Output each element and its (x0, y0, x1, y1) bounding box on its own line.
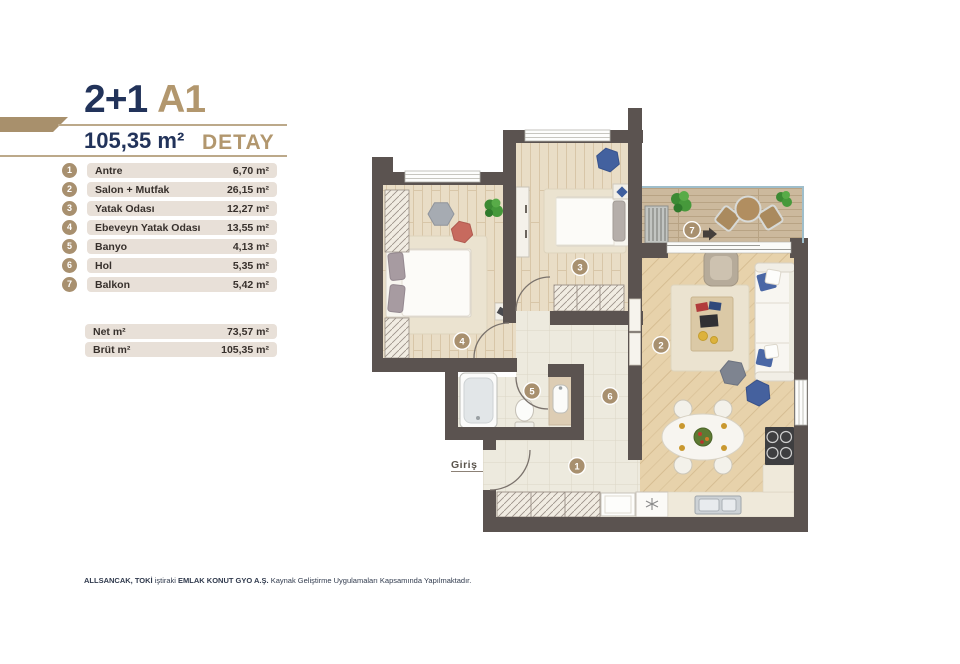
room-number-badge: 3 (62, 201, 77, 216)
fruit (698, 432, 702, 436)
legend-row-salon: 2 Salon + Mutfak26,15 m² (62, 182, 277, 197)
wall (372, 358, 517, 372)
badge-ebeveyn: 4 (454, 333, 471, 350)
room-name: Yatak Odası (95, 203, 155, 215)
room-name: Hol (95, 260, 112, 272)
header-divider-top (58, 124, 287, 126)
room-area: 5,42 m² (233, 279, 269, 291)
gross-area-row: Brüt m² 105,35 m² (85, 342, 277, 357)
duvet (402, 250, 470, 316)
plate (679, 445, 685, 451)
pillow (388, 252, 406, 280)
net-area-row: Net m² 73,57 m² (85, 324, 277, 339)
room-area: 26,15 m² (227, 184, 269, 196)
wall (372, 157, 383, 370)
white-pillow (765, 269, 781, 285)
legend-row-banyo: 5 Banyo4,13 m² (62, 239, 277, 254)
white-pillow (764, 344, 779, 359)
room-area: 4,13 m² (233, 241, 269, 253)
badge-salon: 2 (653, 337, 670, 354)
badge-hol: 6 (602, 388, 619, 405)
balcony-table (736, 197, 761, 222)
door-slab (630, 333, 641, 365)
net-value: 73,57 m² (227, 326, 269, 338)
window (405, 171, 480, 182)
room-number-badge: 6 (62, 258, 77, 273)
plant (671, 191, 692, 213)
disclaimer-bold-1: ALLSANCAK, TOKİ (84, 576, 153, 585)
room-name: Ebeveyn Yatak Odası (95, 222, 200, 234)
armchair-seat (710, 256, 732, 280)
unit-type-label: 2+1 (84, 78, 147, 121)
wardrobe (516, 187, 529, 257)
badge-number: 6 (607, 391, 612, 402)
book (709, 301, 722, 311)
room-number-badge: 2 (62, 182, 77, 197)
net-label: Net m² (93, 326, 126, 338)
floor-plan-svg: 1 2 3 4 5 6 7 Giriş (365, 90, 815, 540)
detail-label: DETAY (202, 131, 275, 155)
plate (721, 423, 727, 429)
door-slab (630, 299, 641, 331)
disclaimer: ALLSANCAK, TOKİ iştiraki EMLAK KONUT GYO… (84, 576, 471, 585)
wall (628, 243, 668, 258)
toilet (516, 399, 534, 421)
badge-number: 3 (577, 262, 582, 273)
badge-antre: 1 (569, 458, 586, 475)
floor-plan: 1 2 3 4 5 6 7 Giriş (365, 90, 815, 540)
room-name: Banyo (95, 241, 127, 253)
badge-banyo: 5 (524, 383, 541, 400)
disclaimer-text-2: Kaynak Geliştirme Uygulamaları Kapsamınd… (269, 576, 472, 585)
gross-label: Brüt m² (93, 344, 130, 356)
fruit (705, 437, 709, 441)
drain (476, 416, 480, 420)
room-number-badge: 7 (62, 277, 77, 292)
room-name: Antre (95, 165, 122, 177)
plate (679, 423, 685, 429)
disclaimer-text-1: iştiraki (153, 576, 178, 585)
wall (503, 130, 516, 323)
pillow (388, 284, 406, 312)
legend-row-hol: 6 Hol5,35 m² (62, 258, 277, 273)
counter (763, 465, 794, 492)
floor-plan-page: { "header": { "unit_type": "2+1", "block… (0, 0, 960, 664)
badge-number: 1 (574, 461, 580, 472)
sink-basin (722, 499, 736, 511)
pillow (613, 201, 625, 241)
sink-basin (699, 499, 719, 511)
wardrobe (385, 190, 409, 252)
gross-value: 105,35 m² (221, 344, 269, 356)
page-title: 2+1A1 (84, 78, 205, 122)
room-area: 6,70 m² (233, 165, 269, 177)
plate (721, 445, 727, 451)
badge-number: 4 (459, 336, 465, 347)
entry-closet (497, 492, 600, 517)
legend-row-yatak: 3 Yatak Odası12,27 m² (62, 201, 277, 216)
fruit (700, 440, 704, 444)
room-name: Balkon (95, 279, 130, 291)
wall (483, 517, 808, 532)
closet (554, 285, 624, 311)
badge-number: 5 (529, 386, 535, 397)
room-name: Salon + Mutfak (95, 184, 169, 196)
wall (550, 311, 643, 325)
room-legend: 1 Antre6,70 m² 2 Salon + Mutfak26,15 m² … (62, 163, 277, 296)
room-number-badge: 5 (62, 239, 77, 254)
badge-balkon: 7 (684, 222, 701, 239)
room-area: 12,27 m² (227, 203, 269, 215)
bowl (699, 332, 708, 341)
room-area: 5,35 m² (233, 260, 269, 272)
faucet (559, 386, 563, 390)
badge-number: 2 (658, 340, 663, 351)
window (795, 380, 807, 425)
gross-area-label: 105,35 m² (84, 128, 184, 154)
wall (483, 440, 496, 450)
area-totals: Net m² 73,57 m² Brüt m² 105,35 m² (85, 324, 277, 360)
sofa-armrest (755, 372, 795, 381)
sliding-glass-door (667, 242, 791, 253)
bowl (711, 337, 718, 344)
header-divider-bottom (0, 155, 287, 157)
room-area: 13,55 m² (227, 222, 269, 234)
wardrobe-handle (525, 230, 527, 238)
entrance-label: Giriş (451, 459, 477, 471)
wardrobe-handle (525, 205, 527, 213)
room-number-badge: 4 (62, 220, 77, 235)
legend-row-ebeveyn: 4 Ebeveyn Yatak Odası13,55 m² (62, 220, 277, 235)
wall (628, 108, 642, 460)
block-code-label: A1 (157, 78, 205, 121)
badge-number: 7 (689, 225, 694, 236)
legend-row-balkon: 7 Balkon5,42 m² (62, 277, 277, 292)
legend-row-antre: 1 Antre6,70 m² (62, 163, 277, 178)
wall (790, 238, 808, 258)
window (525, 130, 610, 141)
disclaimer-bold-2: EMLAK KONUT GYO A.Ş. (178, 576, 269, 585)
room-number-badge: 1 (62, 163, 77, 178)
duvet (556, 198, 614, 245)
wall (445, 427, 584, 440)
wardrobe (385, 318, 409, 358)
badge-yatak: 3 (572, 259, 589, 276)
laptop (700, 314, 719, 328)
